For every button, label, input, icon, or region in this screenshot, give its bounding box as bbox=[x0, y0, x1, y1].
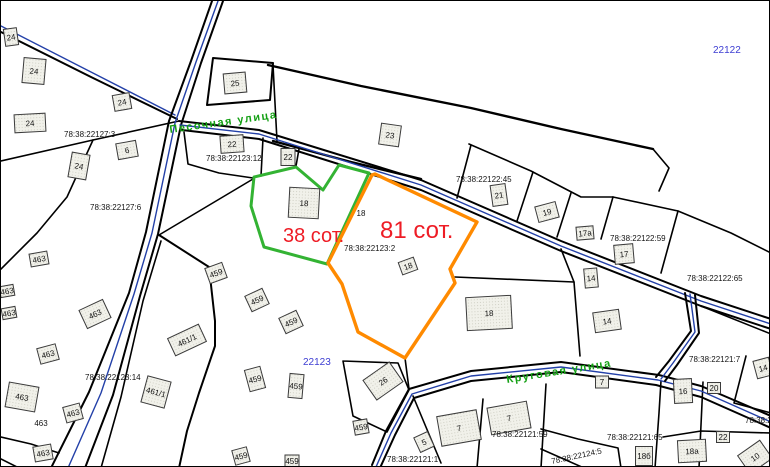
building-22: 22 bbox=[220, 135, 244, 154]
cadastral-number-label: 78:38:22127:3 bbox=[64, 130, 116, 139]
cadastral-map-viewport[interactable]: 242424242462522222318181818211917а171414… bbox=[0, 0, 770, 467]
road-north-south-edge bbox=[51, 1, 212, 467]
building-24: 24 bbox=[3, 28, 18, 47]
building-14: 14 bbox=[584, 268, 599, 288]
building-label: 22 bbox=[284, 153, 293, 162]
building-18: 18 bbox=[288, 187, 320, 219]
parcel-boundary bbox=[1, 459, 19, 467]
building-463: 463 bbox=[1, 306, 17, 319]
building-label: 18б bbox=[637, 452, 651, 461]
parcel-boundary bbox=[268, 65, 653, 149]
cadastral-number-label: 78:38:22121:59 bbox=[492, 430, 548, 439]
building-23: 23 bbox=[379, 123, 402, 147]
building-463: 463 bbox=[33, 444, 53, 462]
building-19: 19 bbox=[535, 202, 559, 223]
building-label: 14 bbox=[586, 274, 596, 284]
road-krugovaya-edge bbox=[372, 362, 770, 465]
building-label: 14 bbox=[602, 316, 613, 326]
building-18: 18 bbox=[357, 209, 366, 218]
building-label: 25 bbox=[230, 79, 240, 89]
cadastral-number-label: 78:38:22121:7 bbox=[689, 355, 741, 364]
building-24: 24 bbox=[68, 152, 90, 180]
parcel-boundary bbox=[457, 145, 471, 198]
cadastral-number-label: 78:38:22122:59 bbox=[610, 234, 666, 243]
building-label: 24 bbox=[29, 67, 39, 77]
building-label: 22 bbox=[719, 433, 728, 442]
parcel-boundary bbox=[413, 396, 441, 463]
building-20: 20 bbox=[708, 383, 721, 394]
parcel-boundaries-layer bbox=[1, 58, 770, 467]
building-18: 18 bbox=[466, 295, 513, 330]
building-18б: 18б bbox=[636, 447, 653, 466]
building-463: 463 bbox=[34, 419, 48, 428]
building-459: 459 bbox=[353, 419, 369, 435]
parcel-area-label: 81 сот. bbox=[380, 217, 453, 244]
parcel-boundary bbox=[653, 149, 669, 191]
building-label: 459 bbox=[285, 457, 299, 466]
building-463: 463 bbox=[63, 403, 84, 423]
building-label: 16 bbox=[678, 387, 688, 396]
building-label: 18 bbox=[484, 309, 494, 318]
building-label: 24 bbox=[25, 119, 35, 128]
building-463: 463 bbox=[79, 299, 111, 328]
cadastral-number-label: 78:38:22123:14 bbox=[85, 373, 141, 382]
cadastral-quarter-label: 22123 bbox=[303, 357, 331, 368]
building-label: 18 bbox=[357, 209, 366, 218]
building-10: 10 bbox=[738, 440, 770, 467]
building-21: 21 bbox=[490, 184, 508, 207]
road-connector-edge bbox=[665, 295, 699, 381]
building-18а: 18а bbox=[677, 439, 706, 462]
cadastral-number-label: 78:38:22123:2 bbox=[344, 244, 396, 253]
building-label: 22 bbox=[227, 140, 237, 150]
building-17а: 17а bbox=[576, 226, 594, 240]
cadastral-number-label: 78:38:22122:45 bbox=[456, 175, 512, 184]
building-25: 25 bbox=[223, 72, 247, 94]
building-label: 24 bbox=[6, 32, 17, 42]
cadastral-number-label: 78:38:2 bbox=[745, 416, 770, 425]
cadastral-number-label: 78:38:22127:6 bbox=[90, 203, 142, 212]
building-14: 14 bbox=[593, 309, 622, 332]
cadastral-map-canvas[interactable]: 242424242462522222318181818211917а171414… bbox=[1, 1, 770, 467]
building-463: 463 bbox=[5, 382, 39, 412]
building-label: 17 bbox=[619, 250, 629, 260]
building-22: 22 bbox=[281, 149, 295, 166]
parcel-boundary bbox=[655, 381, 661, 467]
road-connector-edge bbox=[656, 293, 691, 377]
building-461/1: 461/1 bbox=[141, 376, 171, 408]
building-17: 17 bbox=[614, 244, 635, 265]
cadastral-number-label: 78:38:22123:12 bbox=[206, 154, 262, 163]
building-7: 7 bbox=[596, 376, 609, 388]
cadastral-number-label: 78:38:22122:65 bbox=[687, 274, 743, 283]
building-label: 17а bbox=[578, 228, 593, 238]
building-463: 463 bbox=[37, 344, 59, 364]
building-label: 459 bbox=[289, 381, 304, 391]
parcel-boundary bbox=[517, 172, 533, 221]
building-16: 16 bbox=[673, 379, 692, 404]
building-label: 463 bbox=[34, 419, 48, 428]
building-label: 7 bbox=[600, 378, 605, 387]
building-461/1: 461/1 bbox=[168, 324, 207, 356]
building-label: 18 bbox=[299, 199, 309, 208]
cadastral-number-label: 78:38:22124:5 bbox=[551, 446, 603, 466]
building-label: 18а bbox=[685, 447, 699, 457]
building-459: 459 bbox=[279, 310, 303, 333]
cadastral-quarter-label: 22122 bbox=[713, 45, 741, 56]
building-7: 7 bbox=[437, 410, 482, 446]
building-459: 459 bbox=[245, 288, 269, 311]
road-connector-centerline bbox=[661, 294, 695, 379]
parcel-boundary bbox=[541, 384, 546, 467]
cadastral-number-label: 78:38:22121:65 bbox=[607, 433, 663, 442]
building-5: 5 bbox=[414, 432, 434, 453]
parcel-boundary bbox=[101, 241, 161, 467]
building-26: 26 bbox=[363, 362, 403, 400]
map-labels-layer: 78:38:22127:378:38:22123:1278:38:22127:6… bbox=[64, 45, 770, 466]
building-24: 24 bbox=[112, 93, 132, 112]
building-463: 463 bbox=[29, 251, 49, 267]
building-459: 459 bbox=[244, 366, 265, 391]
cadastral-number-label: 78:38:22121:1 bbox=[387, 455, 439, 464]
building-459: 459 bbox=[288, 373, 304, 398]
building-6: 6 bbox=[116, 140, 138, 159]
parcel-boundary bbox=[273, 65, 277, 141]
building-label: 20 bbox=[710, 384, 719, 393]
building-18: 18 bbox=[398, 257, 417, 275]
building-459: 459 bbox=[285, 455, 299, 467]
building-463: 463 bbox=[1, 284, 15, 297]
parcel-area-label: 38 сот. bbox=[283, 225, 344, 247]
parcel-boundary bbox=[601, 197, 613, 239]
building-22: 22 bbox=[717, 432, 730, 443]
building-14: 14 bbox=[753, 357, 770, 379]
building-label: 23 bbox=[385, 130, 396, 140]
building-24: 24 bbox=[22, 58, 46, 85]
parcel-boundary bbox=[678, 211, 770, 253]
building-459: 459 bbox=[232, 447, 250, 465]
parcel-boundary bbox=[159, 179, 253, 235]
building-label: 21 bbox=[494, 190, 505, 200]
building-24: 24 bbox=[14, 113, 46, 133]
